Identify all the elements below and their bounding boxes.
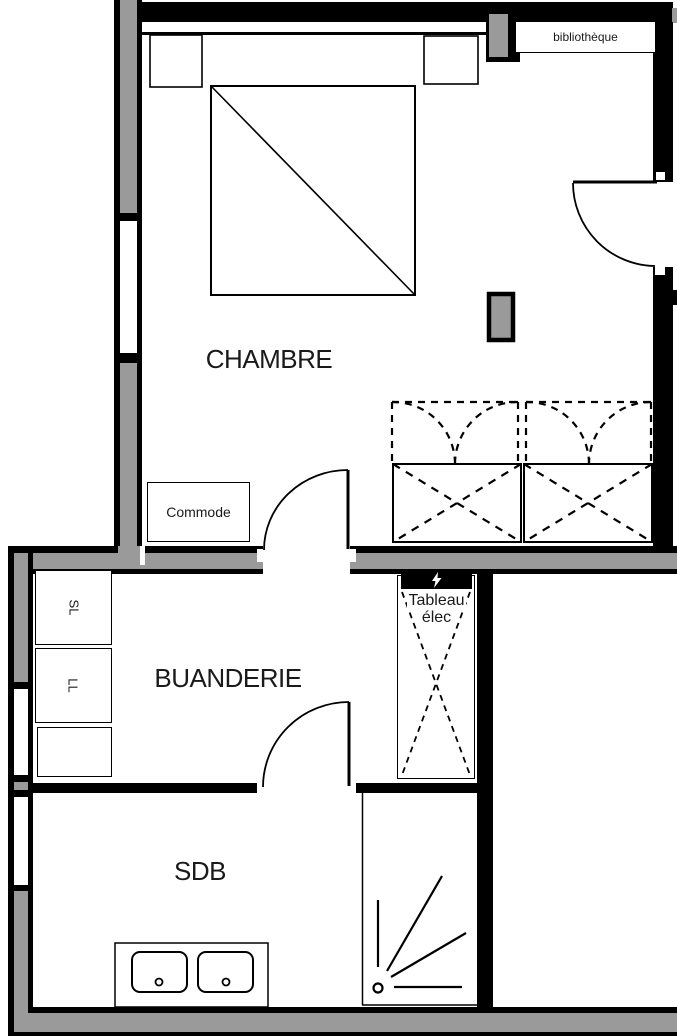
door-opening-chambre bbox=[263, 546, 350, 574]
sl-label: SL bbox=[66, 600, 81, 616]
wall-left-gray-nub bbox=[14, 782, 28, 790]
tableau-elec-header bbox=[401, 570, 472, 589]
sink-right-drain bbox=[223, 979, 230, 986]
wall-left-lower-gray-2 bbox=[14, 891, 28, 1032]
tableau-elec: Tableau élec bbox=[397, 570, 476, 780]
wall-right-upper bbox=[653, 22, 673, 182]
washing-column-ll-box: LL bbox=[35, 648, 112, 723]
door-arc-chambre-buanderie bbox=[264, 470, 348, 550]
room-label-sdb: SDB bbox=[155, 856, 245, 887]
window-chambre-left bbox=[120, 221, 137, 353]
wall-bottom-gray bbox=[14, 1013, 677, 1032]
tableau-elec-label-line2: élec bbox=[397, 609, 476, 626]
floor-plan: bibliothèque Commode SL LL CHAMBRE BUAND… bbox=[0, 0, 677, 1036]
shower-ray-shallow bbox=[391, 933, 466, 977]
wardrobe-door-arc-3 bbox=[526, 402, 589, 464]
ll-label: LL bbox=[66, 678, 81, 692]
wall-top-chambre bbox=[142, 2, 673, 22]
washing-column-sl-box: SL bbox=[35, 570, 112, 645]
door-stop-right-lower bbox=[655, 267, 665, 275]
wardrobe bbox=[392, 402, 652, 542]
door-stop-buanderie-left bbox=[257, 784, 263, 791]
radiator bbox=[489, 294, 513, 340]
lightning-bolt-icon bbox=[432, 572, 442, 588]
window-sdb bbox=[14, 797, 28, 885]
wall-top-pillar-gray bbox=[489, 14, 508, 57]
wall-right-lower bbox=[653, 267, 673, 553]
chambre-furniture bbox=[150, 35, 513, 340]
floor-plan-drawing bbox=[0, 0, 677, 1036]
door-stop-chambre-left bbox=[257, 549, 263, 562]
wall-left-lower-gray-1 bbox=[14, 553, 28, 682]
wall-right-bump bbox=[672, 290, 677, 305]
wardrobe-door-arc-2 bbox=[455, 402, 518, 464]
wall-buanderie-bottom-right bbox=[356, 783, 477, 793]
shower-ray-steep bbox=[387, 876, 442, 971]
door-stop-chambre-right bbox=[350, 549, 356, 562]
shower-drain bbox=[374, 984, 383, 993]
nightstand-left bbox=[150, 35, 202, 87]
bibliotheque-label: bibliothèque bbox=[553, 30, 618, 44]
sdb-fixtures bbox=[115, 793, 477, 1007]
wardrobe-door-arc-1 bbox=[392, 402, 455, 464]
commode-box: Commode bbox=[147, 482, 250, 542]
shower-spray-icon bbox=[374, 876, 467, 993]
door-arc-buanderie-sdb bbox=[263, 702, 349, 787]
wall-top-right-gray-nub bbox=[672, 8, 677, 23]
wall-mid-pillar-gray bbox=[118, 546, 140, 565]
commode-label: Commode bbox=[166, 504, 231, 520]
sink-left-drain bbox=[156, 979, 163, 986]
laundry-shelf-box bbox=[37, 727, 112, 777]
wall-bottom-black-outer bbox=[14, 1032, 677, 1036]
tableau-elec-label-line1: Tableau bbox=[397, 592, 476, 609]
door-stop-buanderie-right bbox=[350, 784, 356, 791]
wall-mid-seam bbox=[140, 546, 145, 565]
door-arc-chambre-entry bbox=[573, 183, 655, 266]
wall-left-chambre-gray-top bbox=[120, 0, 137, 213]
room-label-buanderie: BUANDERIE bbox=[148, 663, 308, 694]
room-label-chambre: CHAMBRE bbox=[189, 344, 349, 375]
bibliotheque-box: bibliothèque bbox=[515, 21, 656, 53]
window-buanderie bbox=[14, 689, 28, 775]
wall-vertical-right bbox=[477, 569, 493, 1013]
wardrobe-door-arc-4 bbox=[589, 402, 651, 464]
wall-left-chambre-gray-bottom bbox=[120, 363, 137, 553]
nightstand-right bbox=[424, 36, 478, 84]
door-stop-right-upper bbox=[656, 172, 665, 180]
wall-bottom-black-inner bbox=[33, 1007, 677, 1013]
wall-buanderie-bottom-left bbox=[33, 783, 257, 793]
